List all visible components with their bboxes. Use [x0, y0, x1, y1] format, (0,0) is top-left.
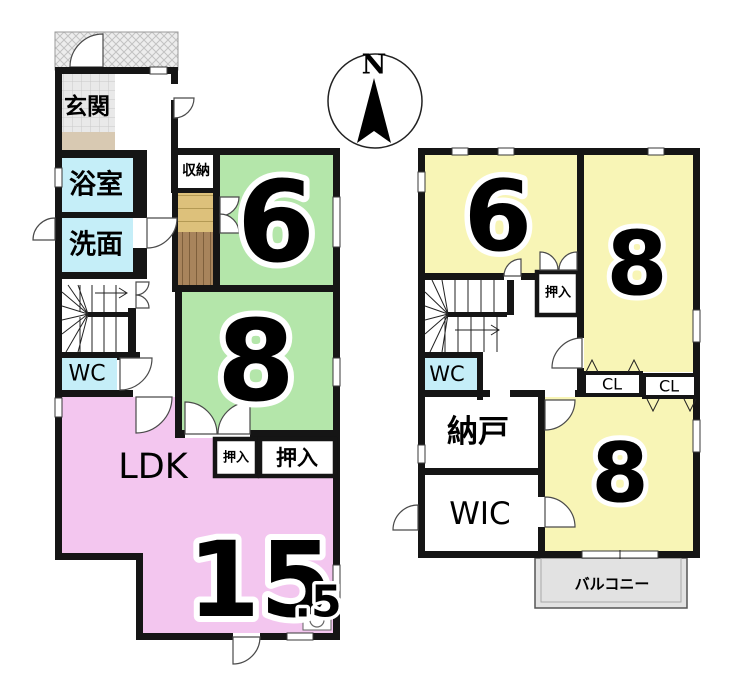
ldk-size-decimal: .5 [294, 577, 341, 628]
room6-size-1f: 6 [237, 158, 315, 288]
wc-label-2f: WC [429, 362, 464, 386]
hall-east-door-arc [174, 98, 194, 118]
storeroom-label: 納戸 [447, 414, 509, 450]
bath-label: 浴室 [69, 169, 123, 201]
window-room8t-north [648, 148, 664, 155]
entrance-porch [55, 32, 178, 70]
step-area [178, 193, 218, 232]
closet-small-label: 押入 [223, 450, 249, 466]
floor-plan-page: 玄関 浴室 洗面 収納 WC 6 8 押入 押入 LDK 15 .5 [0, 0, 740, 691]
closet-large-label: 押入 [276, 446, 318, 470]
window-room6-west [418, 172, 425, 192]
window-room8t-east [693, 310, 700, 342]
compass: N [328, 50, 422, 149]
room8-size-1f: 8 [217, 297, 295, 427]
window-room8b-east [693, 420, 700, 452]
compass-north-label: N [362, 50, 387, 81]
floor-plan-1f: 玄関 浴室 洗面 収納 WC 6 8 押入 押入 LDK 15 .5 [33, 32, 342, 664]
storage-label: 収納 [182, 162, 210, 179]
window-room6-north-b [498, 148, 514, 155]
washroom-west-door-arc [33, 218, 55, 240]
window-room6-north-a [452, 148, 468, 155]
window-storeroom-west [418, 445, 425, 463]
window-ldk-west [55, 398, 62, 417]
west-door-arc-2f [393, 505, 418, 530]
floor-plan-2f: 6 8 8 押入 WC CL CL 納戸 WIC バルコニー [393, 148, 700, 608]
room6-size-2f: 6 [464, 160, 532, 274]
window-room6-east [333, 197, 340, 247]
genkan-step [58, 132, 115, 150]
balcony-label: バルコニー [575, 575, 650, 593]
cl-right-label: CL [659, 377, 679, 396]
ldk-south-door-arc [233, 637, 260, 664]
washroom-label: 洗面 [69, 230, 123, 261]
window-bath-west [55, 168, 62, 187]
window-hall-north [150, 67, 167, 74]
room8-top-size: 8 [606, 213, 667, 316]
closet-label-2f: 押入 [545, 285, 571, 301]
room8-bottom-size: 8 [591, 427, 648, 522]
wc-label-1f: WC [68, 362, 105, 387]
window-room8-east [333, 358, 340, 386]
wic-label: WIC [449, 496, 510, 532]
ldk-label: LDK [118, 447, 188, 487]
genkan-label: 玄関 [64, 93, 110, 120]
floor-plan-drawing: 玄関 浴室 洗面 収納 WC 6 8 押入 押入 LDK 15 .5 [0, 0, 740, 691]
cl-left-label: CL [602, 375, 622, 394]
wood-floor-area [178, 232, 218, 290]
